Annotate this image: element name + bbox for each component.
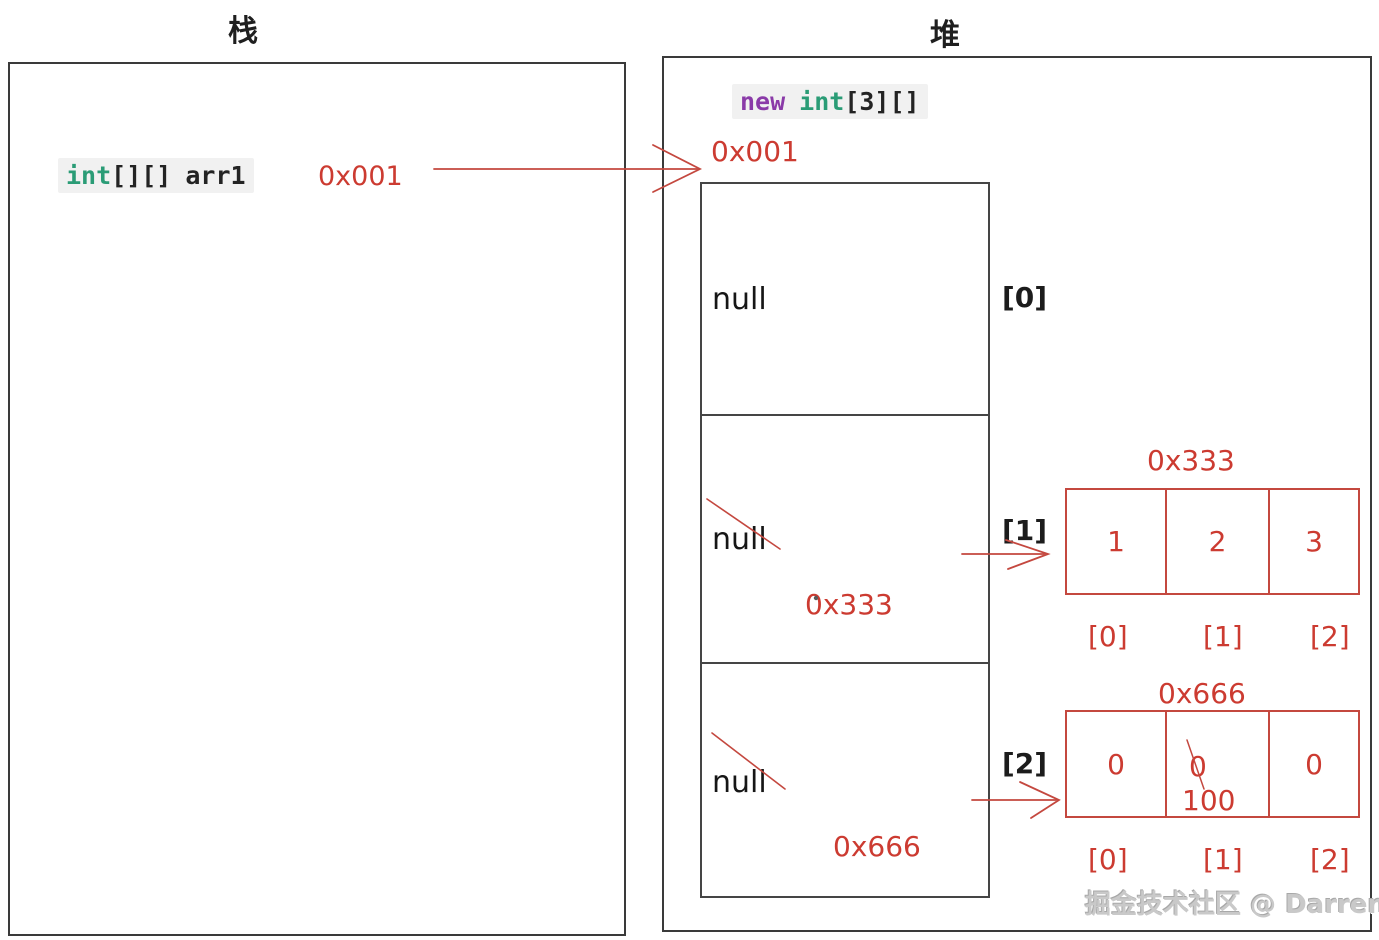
type-keyword: int — [66, 161, 111, 190]
heap-address-label: 0x001 — [711, 135, 799, 168]
array-333-value-2: 3 — [1305, 525, 1323, 558]
outer-index-1: [1] — [1002, 514, 1047, 547]
type-keyword: int — [799, 87, 844, 116]
cell1-new-address: 0x333 — [805, 588, 893, 621]
variable-name: arr1 — [185, 161, 245, 190]
array-333-cell-2: 3 — [1268, 490, 1358, 593]
outer-index-2: [2] — [1002, 747, 1047, 780]
array-666-index-1: [1] — [1203, 843, 1243, 876]
array-333-box: 1 2 3 — [1065, 488, 1360, 595]
array-brackets: [3][] — [844, 87, 919, 116]
null-value: null — [702, 282, 767, 317]
array-333-value-0: 1 — [1107, 525, 1125, 558]
array-666-value-1-crossed: 0 — [1189, 750, 1207, 783]
stack-variable-declaration: int[][]arr1 — [58, 158, 254, 193]
array-666-title: 0x666 — [1158, 677, 1246, 710]
new-keyword: new — [740, 87, 785, 116]
stack-address-value: 0x001 — [318, 161, 403, 192]
array-666-value-0: 0 — [1107, 748, 1125, 781]
array-333-title: 0x333 — [1147, 444, 1235, 477]
array-666-index-0: [0] — [1088, 843, 1128, 876]
watermark: 掘金技术社区 @ Darren — [1085, 884, 1379, 921]
array-333-index-0: [0] — [1088, 620, 1128, 653]
array-666-new-value: 100 — [1182, 784, 1235, 817]
array-333-cell-0: 1 — [1067, 490, 1165, 593]
outer-cell-1: null 0x333 — [702, 414, 988, 662]
array-666-index-2: [2] — [1310, 843, 1350, 876]
array-666-cell-2: 0 — [1268, 712, 1358, 816]
stack-box — [8, 62, 626, 936]
array-666-value-2: 0 — [1305, 748, 1323, 781]
array-333-index-1: [1] — [1203, 620, 1243, 653]
heap-title: 堆 — [930, 10, 961, 54]
array-666-cell-0: 0 — [1067, 712, 1165, 816]
null-value-crossed: null — [702, 522, 767, 557]
array-666-cell-1: 0 100 — [1165, 712, 1268, 816]
heap-new-expression: newint[3][] — [732, 84, 928, 119]
memory-diagram: 栈 int[][]arr1 0x001 堆 newint[3][] 0x001 … — [0, 0, 1379, 940]
outer-cell-0: null — [702, 184, 988, 414]
cell2-new-address: 0x666 — [833, 830, 921, 863]
array-brackets: [][] — [111, 161, 171, 190]
stack-title: 栈 — [228, 6, 259, 50]
outer-array-box: null null 0x333 null 0x666 — [700, 182, 990, 898]
array-333-index-2: [2] — [1310, 620, 1350, 653]
array-333-value-1: 2 — [1209, 525, 1227, 558]
outer-index-0: [0] — [1002, 281, 1047, 314]
outer-cell-2: null 0x666 — [702, 662, 988, 900]
array-666-box: 0 0 100 0 — [1065, 710, 1360, 818]
array-333-cell-1: 2 — [1165, 490, 1268, 593]
null-value-crossed: null — [702, 765, 767, 800]
